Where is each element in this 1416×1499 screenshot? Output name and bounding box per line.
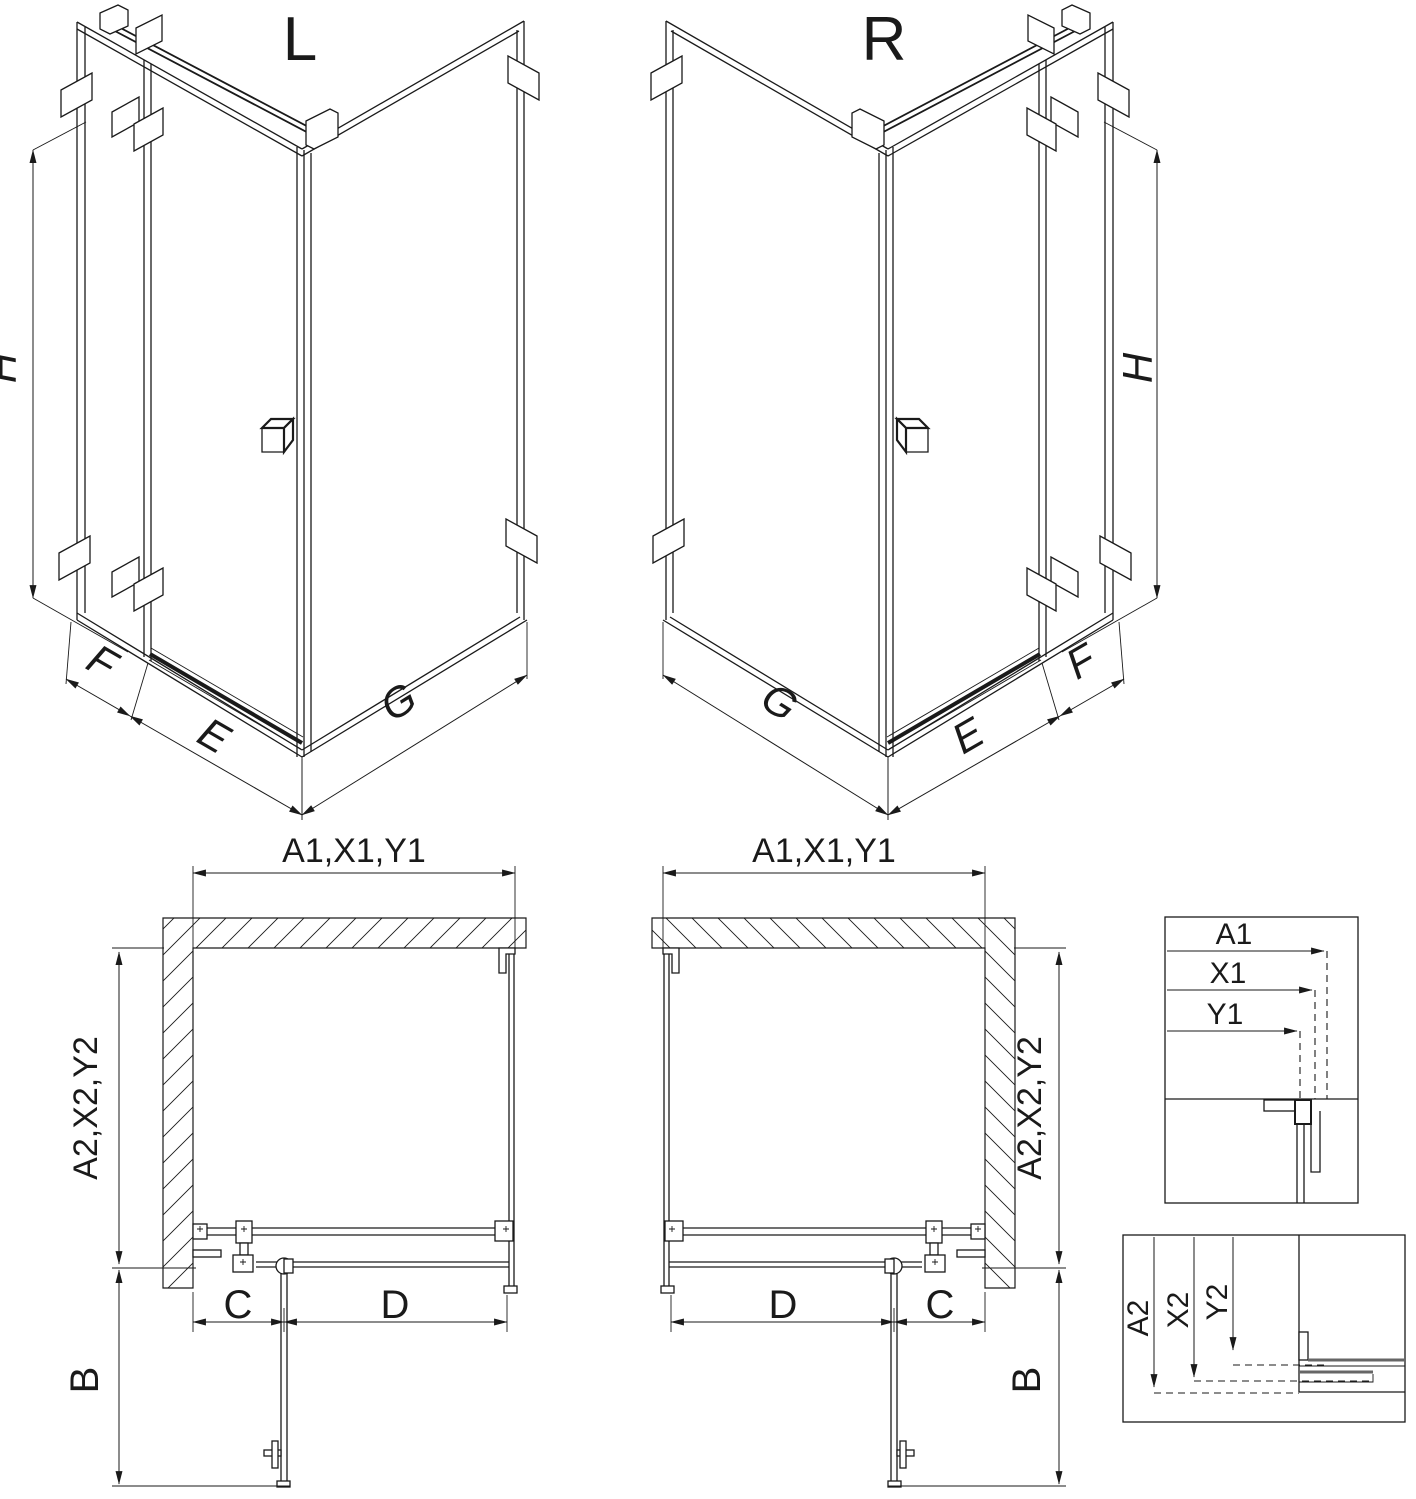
dim-label-H: H	[1114, 352, 1161, 383]
variant-label-L: L	[283, 5, 317, 74]
dim-label-X1: X1	[1210, 957, 1247, 990]
iso-view-right-variant: R H F E G	[651, 5, 1161, 820]
variant-label-R: R	[862, 5, 907, 74]
dim-label-A2X2Y2: A2,X2,Y2	[1011, 1036, 1049, 1180]
dim-label-D: D	[381, 1283, 410, 1327]
plan-view-right-variant: A1,X1,Y1 A2,X2,Y2 C D B	[652, 832, 1066, 1487]
dim-label-A1: A1	[1216, 918, 1253, 951]
dim-label-Y2: Y2	[1201, 1284, 1234, 1321]
dim-label-H: H	[0, 352, 25, 383]
dim-label-Y1: Y1	[1207, 998, 1244, 1031]
dim-label-D: D	[769, 1283, 798, 1327]
wall-profile-section	[1264, 1100, 1320, 1203]
shower-enclosure-dimension-diagram: L H F E G R H F E G A1,X1,Y1 A2,X2,Y2 C …	[0, 0, 1416, 1499]
dim-label-A1X1Y1: A1,X1,Y1	[752, 832, 896, 870]
dim-label-G: G	[372, 673, 425, 730]
sill-profile-section	[1299, 1332, 1405, 1382]
dim-label-X2: X2	[1162, 1292, 1195, 1329]
dim-label-A2: A2	[1122, 1300, 1155, 1337]
dim-label-E: E	[944, 708, 993, 763]
dim-label-F: F	[79, 635, 127, 690]
detail-view-depth-reference: A2 X2 Y2	[1122, 1235, 1405, 1422]
dim-label-C: C	[926, 1283, 955, 1327]
dim-label-B: B	[63, 1367, 107, 1394]
dim-label-G: G	[753, 673, 806, 730]
plan-view-left-variant: A1,X1,Y1 A2,X2,Y2 C D B	[63, 832, 526, 1487]
dim-label-A1X1Y1: A1,X1,Y1	[282, 832, 426, 870]
dim-label-B: B	[1005, 1367, 1049, 1394]
diagram-canvas: L H F E G R H F E G A1,X1,Y1 A2,X2,Y2 C …	[0, 0, 1416, 1499]
dim-label-A2X2Y2: A2,X2,Y2	[67, 1036, 105, 1180]
detail-view-width-reference: A1 X1 Y1	[1165, 917, 1358, 1203]
iso-view-left-variant: L H F E G	[0, 5, 539, 820]
dim-label-C: C	[224, 1283, 253, 1327]
